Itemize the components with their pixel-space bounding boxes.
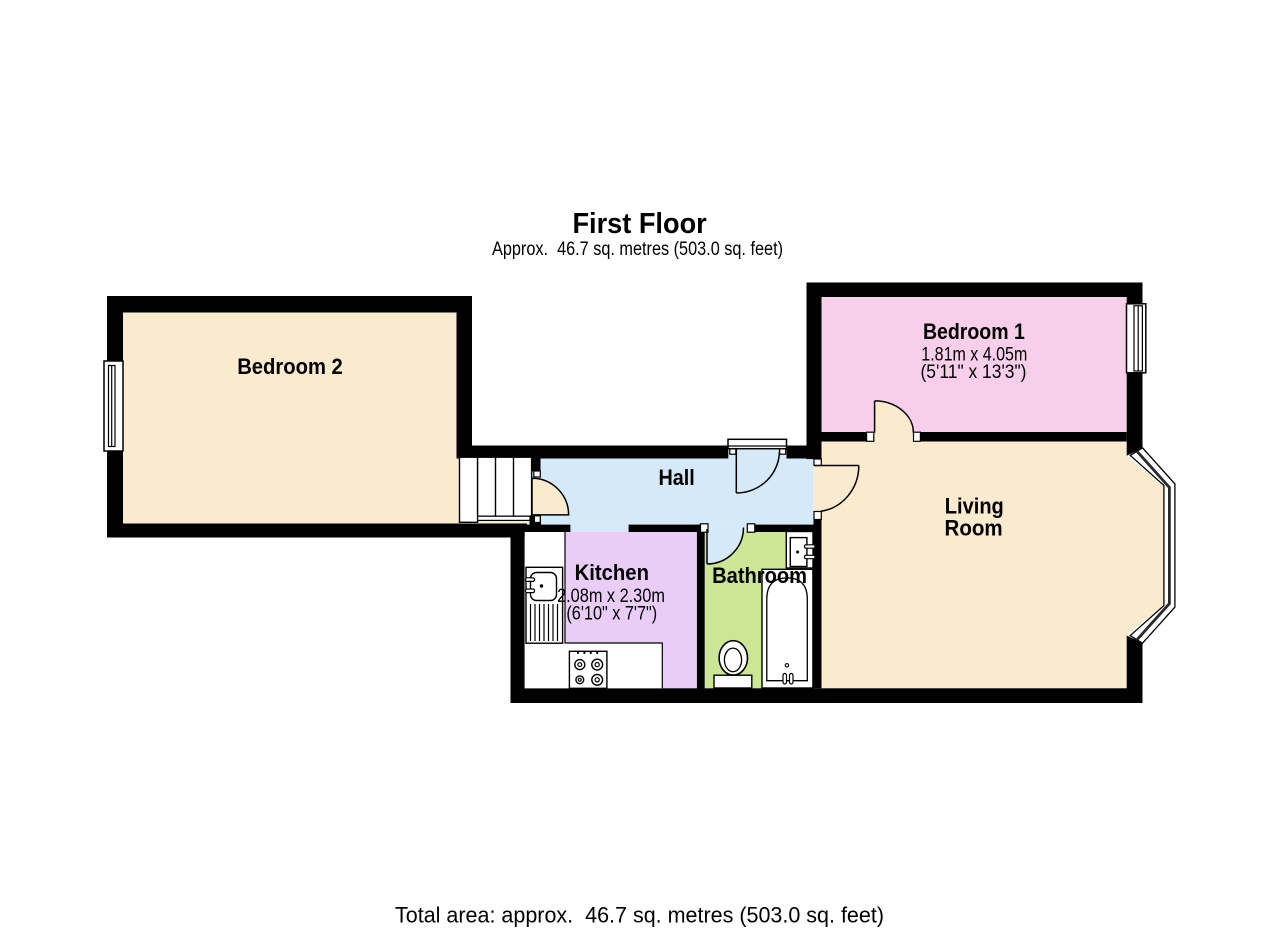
svg-text:Total area: approx. 46.7 sq.: Total area: approx. 46.7 sq. metres (503… bbox=[395, 902, 884, 927]
svg-text:(6'10" x 7'7"): (6'10" x 7'7") bbox=[566, 603, 657, 625]
svg-text:(5'11" x 13'3"): (5'11" x 13'3") bbox=[921, 361, 1027, 383]
svg-text:Bathroom: Bathroom bbox=[712, 563, 807, 588]
svg-text:First Floor: First Floor bbox=[572, 208, 706, 240]
svg-text:Approx. 46.7 sq. metres (503.: Approx. 46.7 sq. metres (503.0 sq. feet) bbox=[492, 239, 783, 260]
svg-text:Bedroom 2: Bedroom 2 bbox=[237, 354, 343, 379]
svg-text:Room: Room bbox=[945, 515, 1003, 540]
svg-text:Hall: Hall bbox=[658, 465, 694, 490]
svg-text:Kitchen: Kitchen bbox=[575, 560, 649, 585]
svg-text:Bedroom 1: Bedroom 1 bbox=[923, 319, 1025, 344]
